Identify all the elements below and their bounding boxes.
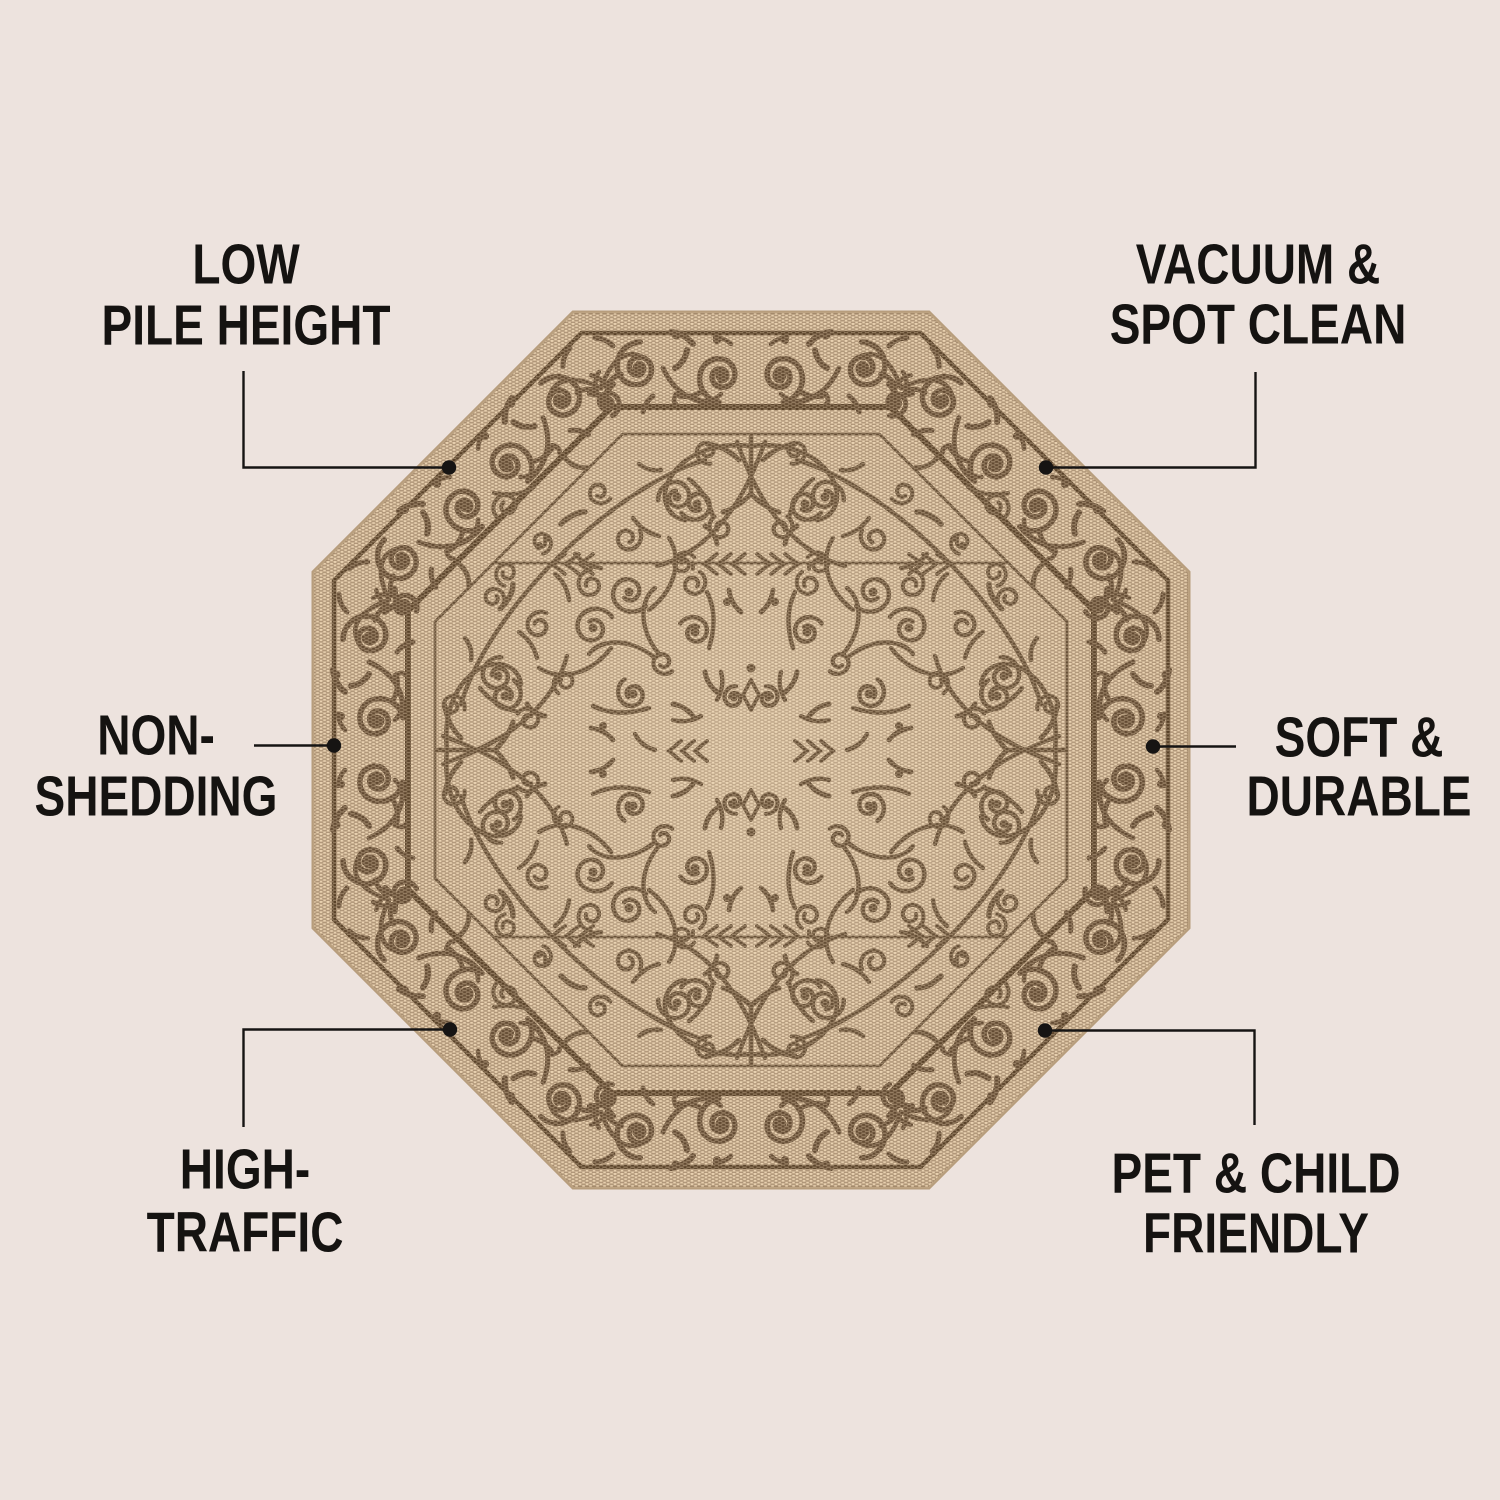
svg-text:SHEDDING: SHEDDING <box>35 764 278 828</box>
svg-text:DURABLE: DURABLE <box>1246 764 1471 828</box>
svg-text:TRAFFIC: TRAFFIC <box>147 1200 344 1264</box>
svg-text:PILE HEIGHT: PILE HEIGHT <box>102 293 391 357</box>
svg-text:VACUUM &: VACUUM & <box>1136 232 1381 296</box>
svg-text:SPOT CLEAN: SPOT CLEAN <box>1110 292 1407 356</box>
svg-text:NON-: NON- <box>97 703 215 767</box>
svg-text:HIGH-: HIGH- <box>180 1137 310 1201</box>
svg-text:LOW: LOW <box>192 232 300 296</box>
svg-text:SOFT &: SOFT & <box>1275 705 1444 769</box>
svg-text:PET & CHILD: PET & CHILD <box>1112 1141 1401 1205</box>
svg-text:FRIENDLY: FRIENDLY <box>1143 1201 1369 1265</box>
